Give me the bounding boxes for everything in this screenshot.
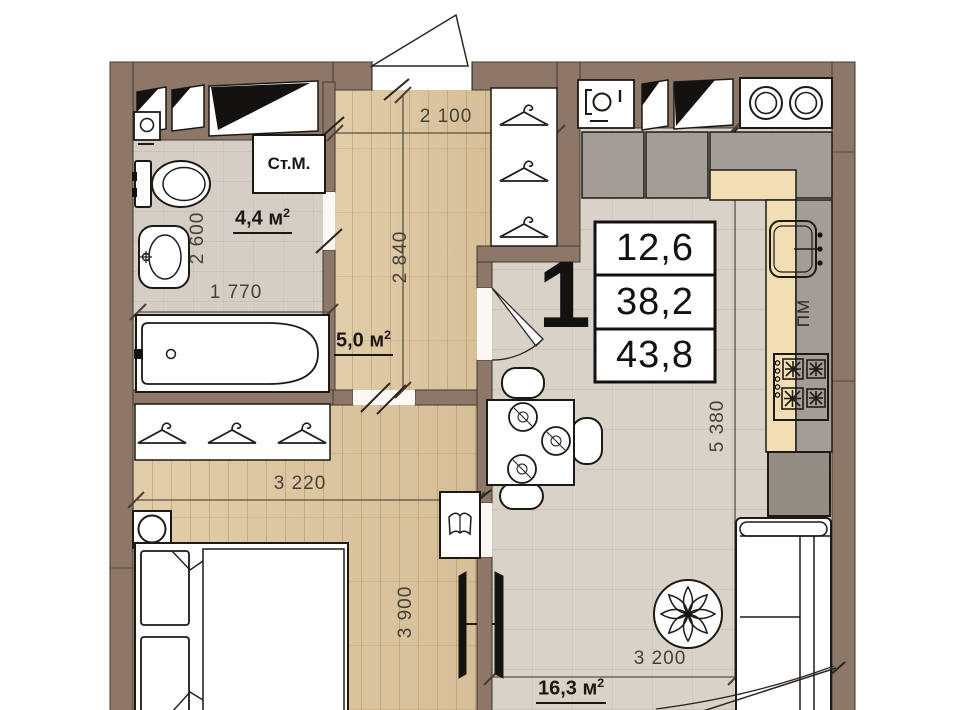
wall-tv-partition	[477, 557, 492, 710]
bathroom-area-value: 4,4	[235, 208, 263, 230]
wall-left	[110, 62, 133, 710]
tv-icon	[495, 572, 503, 678]
living-area-unit: м	[583, 678, 598, 700]
floor-plan: 2 100 2 840 2 600 1 770 3 220 3 900 5 38…	[0, 0, 960, 710]
entry-door-swing-icon	[372, 15, 468, 66]
living-door-swing-icon	[492, 288, 543, 360]
cabinet-2	[646, 132, 708, 198]
wall-right	[832, 62, 855, 710]
hall-closet	[491, 88, 557, 246]
wall-bedroom-top-left	[333, 390, 353, 405]
unit-number: 1	[538, 250, 591, 340]
hallway-area-label: 5,0 м2	[334, 328, 393, 356]
wall-top-mid	[472, 62, 557, 90]
dim-bedroom-depth: 3 900	[396, 567, 416, 657]
bed	[135, 543, 348, 710]
plant-icon	[654, 580, 722, 648]
bedroom-door-opening	[353, 390, 415, 405]
living-area-value: 16,3	[538, 678, 577, 700]
sofa	[736, 518, 831, 710]
bathroom-area-sup: 2	[283, 206, 290, 220]
kitchen-appliance-icon	[578, 80, 634, 128]
chair	[500, 483, 543, 509]
wall-hall-top	[333, 62, 373, 90]
unit-area-row-1: 12,6	[595, 224, 715, 272]
fridge	[768, 452, 830, 516]
hallway-area-sup: 2	[384, 328, 391, 342]
chair	[502, 368, 544, 398]
living-area-sup: 2	[597, 676, 604, 690]
wall-hall-living-upper	[477, 262, 492, 288]
living-area-label: 16,3 м2	[536, 676, 606, 704]
bathroom-area-label: 4,4 м2	[233, 206, 292, 234]
bathroom-area-unit: м	[268, 208, 283, 230]
unit-area-row-3: 43,8	[595, 331, 715, 379]
hallway-area-value: 5,0	[336, 330, 364, 352]
hallway-area-unit: м	[369, 330, 384, 352]
door-openings	[323, 62, 492, 557]
bedroom-wardrobe	[135, 404, 330, 460]
dining-set	[487, 368, 602, 509]
wash-basin-icon	[139, 226, 189, 288]
dim-bath-depth: 2 600	[188, 193, 208, 283]
pillow	[141, 637, 189, 710]
dim-hall-width: 2 100	[400, 107, 492, 127]
living-door-opening	[477, 288, 492, 360]
unit-area-row-2: 38,2	[595, 278, 715, 326]
wall-closet-right	[557, 62, 580, 262]
washing-machine-icon	[134, 112, 160, 144]
dim-kitchen-width: 3 200	[614, 649, 706, 669]
nightstand	[440, 492, 480, 558]
wall-bedroom-top-right	[415, 390, 477, 405]
dim-bath-width: 1 770	[190, 283, 282, 303]
washing-machine-label: Ст.М.	[257, 154, 321, 174]
bathtub-icon	[134, 315, 329, 392]
tv-icon	[459, 572, 466, 678]
counter-corner	[710, 170, 796, 200]
dim-hall-depth: 2 840	[391, 212, 411, 302]
dim-kitchen-depth: 5 380	[708, 381, 728, 471]
cooktop-icon	[740, 78, 832, 128]
dishwasher-label: ПМ	[794, 283, 814, 343]
dim-bedroom-width: 3 220	[254, 474, 346, 494]
chair	[572, 418, 602, 464]
cabinet-1	[582, 132, 644, 198]
